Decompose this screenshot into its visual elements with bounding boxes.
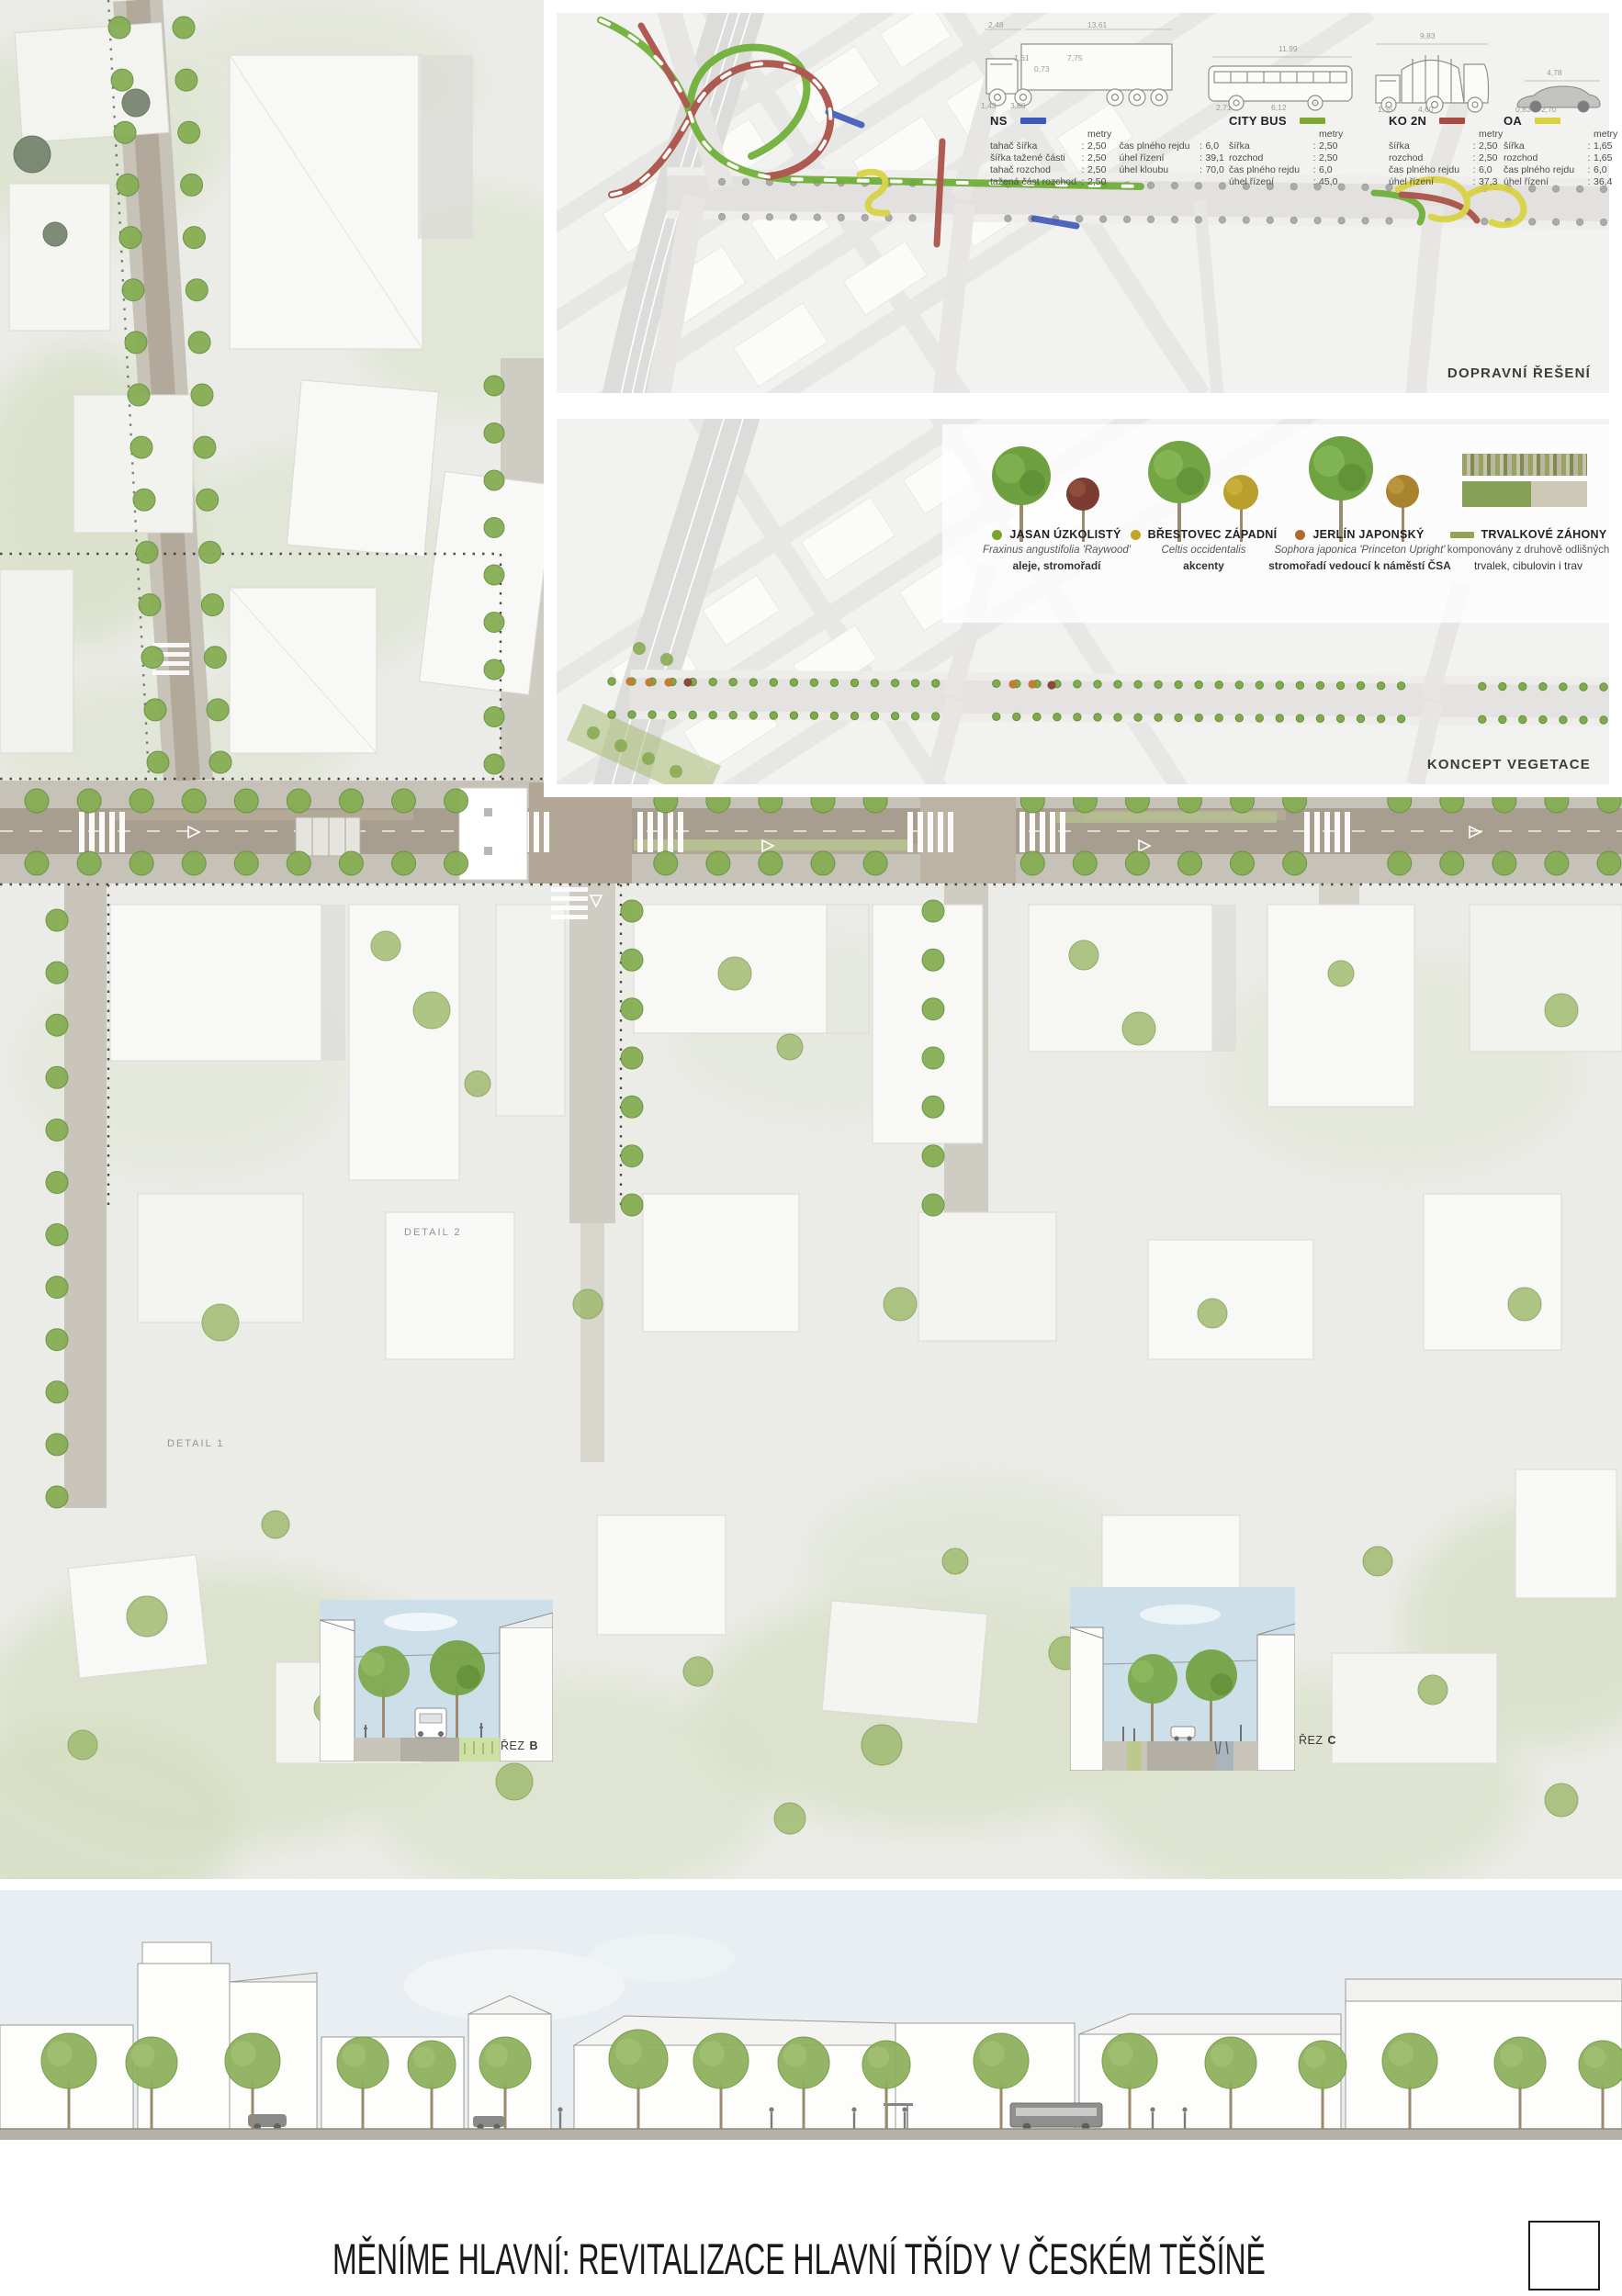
legend-row: šířka:2,50	[1389, 141, 1497, 152]
dimension-label: 0,73	[1034, 64, 1050, 73]
legend-citybus: CITY BUSmetryšířka:2,50rozchod:2,50čas p…	[1229, 114, 1376, 188]
veg-item-trvalky: TRVALKOVÉ ZÁHONYkomponovány z druhově od…	[1436, 527, 1620, 574]
veg-item-header: TRVALKOVÉ ZÁHONY	[1436, 527, 1620, 543]
legend-row-value: 6,0	[1479, 164, 1492, 176]
legend-row-label: čas plného rejdu	[1504, 164, 1584, 176]
legend-row: tahač šířka:2,50	[990, 141, 1106, 152]
section-b-inset	[320, 1600, 553, 1761]
legend-row-value: 1,65	[1594, 141, 1612, 152]
legend-row-value: 1,65	[1594, 152, 1612, 164]
legend-row-separator: :	[1196, 152, 1205, 164]
legend-row: šířka:1,65	[1504, 141, 1612, 152]
detail-2-label: DETAIL 2	[404, 1227, 461, 1238]
veg-item-swatch	[1450, 532, 1474, 538]
legend-row-separator: :	[1470, 152, 1479, 164]
east-crossing-paving	[920, 782, 1016, 884]
legend-row: šířka tažené části:2,50	[990, 152, 1106, 164]
stamp-box	[1528, 2221, 1600, 2290]
section-label-prefix: ŘEZ	[1299, 1734, 1324, 1747]
poster-title: MĚNÍME HLAVNÍ: REVITALIZACE HLAVNÍ TŘÍDY…	[332, 2234, 1266, 2284]
perennial-bed-swatch-1	[1462, 454, 1587, 476]
legend-row: čas plného rejdu:6,0	[1504, 164, 1612, 176]
veg-item-jasan: JASAN ÚZKOLISTÝFraxinus angustifolia 'Ra…	[972, 527, 1142, 574]
legend-row-value: 36,4	[1594, 176, 1612, 188]
dimension-label: 4,78	[1547, 68, 1562, 77]
legend-row-separator: :	[1310, 152, 1319, 164]
dimension-label: 0,83	[1515, 105, 1531, 114]
legend-row: čas plného rejdu:6,0	[1389, 164, 1497, 176]
vehicle-color-swatch	[1020, 118, 1046, 124]
legend-unit: metry	[1087, 129, 1234, 141]
veg-item-swatch	[1131, 530, 1141, 540]
legend-row-separator: :	[1584, 164, 1594, 176]
legend-row-label: úhel řízení	[1389, 176, 1470, 188]
legend-unit: metry	[1319, 129, 1376, 141]
veg-item-header: JASAN ÚZKOLISTÝ	[972, 527, 1142, 543]
dimension-label: 2,48	[988, 20, 1004, 29]
legend-row-label: úhel řízení	[1504, 176, 1584, 188]
legend-row-label: tažená část rozchod	[990, 176, 1078, 188]
veg-item-role: aleje, stromořadí	[972, 558, 1142, 574]
veg-item-species: Sophora japonica 'Princeton Upright'	[1252, 543, 1468, 558]
vehicle-label: CITY BUS	[1229, 115, 1287, 127]
legend-row-value: 39,1	[1205, 152, 1223, 164]
legend-row: tahač rozchod:2,50	[990, 164, 1106, 176]
legend-row-label: úhel kloubu	[1119, 164, 1196, 176]
legend-row: rozchod:1,65	[1504, 152, 1612, 164]
legend-row-value: 6,0	[1594, 164, 1607, 176]
legend-row-label: úhel řízení	[1119, 152, 1196, 164]
legend-row-value: 2,50	[1087, 176, 1106, 188]
legend-row-separator: :	[1078, 176, 1087, 188]
section-c-inset	[1070, 1587, 1295, 1771]
dimension-label: 1,35	[1378, 105, 1393, 114]
legend-row-separator: :	[1584, 176, 1594, 188]
legend-row-value: 2,50	[1479, 152, 1497, 164]
legend-row-separator: :	[1470, 176, 1479, 188]
legend-row: rozchod:2,50	[1389, 152, 1497, 164]
street-elevation	[0, 1885, 1622, 2153]
legend-row-value: 2,50	[1479, 141, 1497, 152]
dimension-label: 2,71	[1216, 103, 1232, 112]
legend-row-label: tahač rozchod	[990, 164, 1078, 176]
dimension-label: 7,75	[1067, 53, 1083, 62]
dimension-label: 11,99	[1278, 44, 1298, 53]
dimension-label: 13,61	[1087, 20, 1107, 29]
legend-row-separator: :	[1310, 164, 1319, 176]
legend-row: úhel kloubu:70,0	[1119, 164, 1223, 176]
legend-row-value: 2,50	[1319, 152, 1337, 164]
legend-row-label: rozchod	[1389, 152, 1470, 164]
traffic-panel-caption: DOPRAVNÍ ŘEŠENÍ	[1352, 366, 1591, 381]
detail-1-label: DETAIL 1	[167, 1438, 224, 1449]
vehicle-label: OA	[1504, 115, 1522, 127]
dimension-label: 2,70	[1541, 105, 1557, 114]
canopy-structure	[459, 788, 527, 880]
legend-row-label: čas plného rejdu	[1119, 141, 1196, 152]
jerlin-tree-figure	[1299, 433, 1427, 542]
dimension-label: 9,83	[1420, 31, 1436, 40]
vehicle-color-swatch	[1535, 118, 1560, 124]
legend-row-separator: :	[1470, 141, 1479, 152]
veg-item-jerlin: JERLÍN JAPONSKÝSophora japonica 'Princet…	[1252, 527, 1468, 574]
section-label-letter: B	[530, 1739, 539, 1752]
legend-row-value: 2,50	[1319, 141, 1337, 152]
legend-row-label: tahač šířka	[990, 141, 1078, 152]
veg-item-role: stromořadí vedoucí k náměstí ČSA	[1252, 558, 1468, 574]
legend-row-separator: :	[1196, 164, 1205, 176]
legend-header: OA	[1504, 114, 1618, 127]
legend-row-value: 6,0	[1319, 164, 1333, 176]
veg-item-role: trvalek, cibulovin i trav	[1436, 558, 1620, 574]
legend-row: úhel řízení:45,0	[1229, 176, 1337, 188]
legend-row-separator: :	[1078, 164, 1087, 176]
veg-item-name: JERLÍN JAPONSKÝ	[1312, 527, 1424, 543]
truck-diagram-figure: 2,4813,611,617,750,731,433,80	[981, 17, 1187, 112]
vegetation-panel: JASAN ÚZKOLISTÝFraxinus angustifolia 'Ra…	[544, 406, 1622, 797]
legend-row-separator: :	[1470, 164, 1479, 176]
legend-header: NS	[990, 114, 1234, 127]
legend-row-label: šířka	[1389, 141, 1470, 152]
vehicle-color-swatch	[1300, 118, 1325, 124]
legend-row: rozchod:2,50	[1229, 152, 1337, 164]
section-b-label: ŘEZB	[501, 1739, 538, 1752]
legend-ns: NSmetrytahač šířka:2,50šířka tažené část…	[990, 114, 1234, 188]
legend-row-value: 37,3	[1479, 176, 1497, 188]
vegetation-panel-caption: KONCEPT VEGETACE	[1352, 757, 1591, 772]
traffic-panel: 2,4813,611,617,750,731,433,80 11,992,716…	[544, 0, 1622, 406]
garbage-truck-diagram-figure: 9,831,354,60	[1369, 31, 1497, 114]
legend-row-separator: :	[1584, 141, 1594, 152]
bus-diagram-figure: 11,992,716,12	[1203, 44, 1359, 112]
legend-row-separator: :	[1196, 141, 1205, 152]
veg-item-swatch	[992, 530, 1002, 540]
perennial-bed-swatch-2	[1462, 481, 1587, 507]
legend-row-value: 6,0	[1205, 141, 1219, 152]
legend-row-separator: :	[1078, 141, 1087, 152]
legend-row-label: šířka	[1504, 141, 1584, 152]
vehicle-label: KO 2N	[1389, 115, 1426, 127]
legend-row: úhel řízení:36,4	[1504, 176, 1612, 188]
dimension-label: 1,43	[981, 101, 997, 110]
dimension-label: 6,12	[1271, 103, 1287, 112]
legend-row-value: 70,0	[1205, 164, 1223, 176]
kiosk-structure	[296, 817, 360, 856]
legend-row-separator: :	[1078, 152, 1087, 164]
legend-row-value: 2,50	[1087, 141, 1106, 152]
legend-header: CITY BUS	[1229, 114, 1376, 127]
veg-item-swatch	[1295, 530, 1305, 540]
legend-row-label: čas plného rejdu	[1389, 164, 1470, 176]
veg-item-species: Fraxinus angustifolia 'Raywood'	[972, 543, 1142, 558]
veg-item-header: JERLÍN JAPONSKÝ	[1252, 527, 1468, 543]
title-band: MĚNÍME HLAVNÍ: REVITALIZACE HLAVNÍ TŘÍDY…	[0, 2140, 1622, 2296]
dimension-label: 4,60	[1418, 105, 1434, 114]
legend-row-separator: :	[1310, 176, 1319, 188]
vehicle-color-swatch	[1439, 118, 1465, 124]
legend-row: čas plného rejdu:6,0	[1119, 141, 1223, 152]
poster: 2,4813,611,617,750,731,433,80 11,992,716…	[0, 0, 1622, 2296]
dimension-label: 1,61	[1014, 53, 1030, 62]
dimension-label: 3,80	[1010, 101, 1026, 110]
legend-row: čas plného rejdu:6,0	[1229, 164, 1337, 176]
legend-row: tažená část rozchod:2,50	[990, 176, 1106, 188]
legend-row-value: 2,50	[1087, 152, 1106, 164]
legend-row-label: šířka tažené části	[990, 152, 1078, 164]
legend-row-value: 2,50	[1087, 164, 1106, 176]
legend-row-label: úhel řízení	[1229, 176, 1310, 188]
legend-unit: metry	[1594, 129, 1618, 141]
veg-item-name: TRVALKOVÉ ZÁHONY	[1481, 527, 1607, 543]
vehicle-label: NS	[990, 115, 1008, 127]
car-diagram-figure: 4,780,832,70	[1514, 68, 1605, 112]
legend-oa: OAmetryšířka:1,65rozchod:1,65čas plného …	[1504, 114, 1618, 188]
legend-row: úhel řízení:37,3	[1389, 176, 1497, 188]
section-label-letter: C	[1328, 1734, 1337, 1747]
legend-row-label: čas plného rejdu	[1229, 164, 1310, 176]
legend-row: šířka:2,50	[1229, 141, 1337, 152]
legend-row-separator: :	[1310, 141, 1319, 152]
legend-row-label: rozchod	[1229, 152, 1310, 164]
section-c-label: ŘEZC	[1299, 1734, 1336, 1747]
legend-row-label: rozchod	[1504, 152, 1584, 164]
veg-item-species: komponovány z druhově odlišných	[1436, 543, 1620, 558]
legend-row-label: šířka	[1229, 141, 1310, 152]
section-label-prefix: ŘEZ	[501, 1739, 525, 1752]
legend-row-separator: :	[1584, 152, 1594, 164]
brestovec-tree-figure	[1139, 437, 1267, 542]
legend-row-value: 45,0	[1319, 176, 1337, 188]
legend-row: úhel řízení:39,1	[1119, 152, 1223, 164]
veg-item-name: JASAN ÚZKOLISTÝ	[1009, 527, 1121, 543]
